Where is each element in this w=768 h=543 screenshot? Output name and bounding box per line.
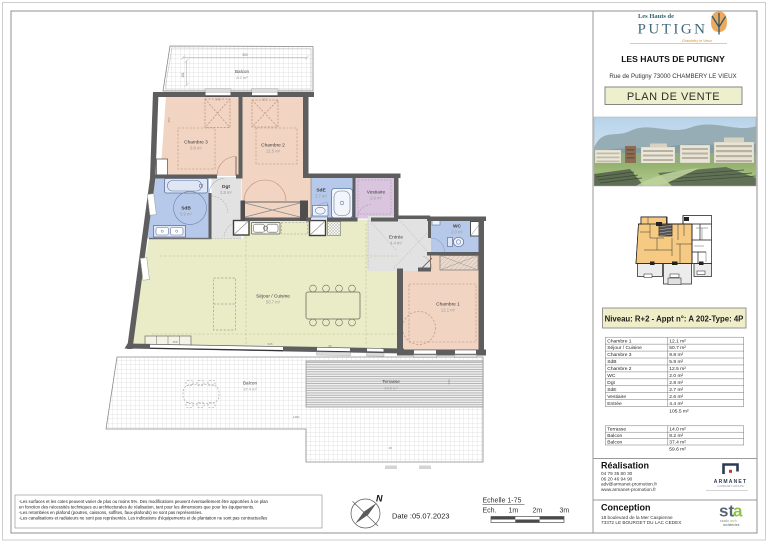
svg-text:946: 946: [267, 342, 272, 346]
svg-text:Vestiaire: Vestiaire: [607, 394, 626, 400]
svg-text:en fonction des nécessités tec: en fonction des nécessités techniques ou…: [19, 505, 254, 510]
svg-text:Chambre 2: Chambre 2: [607, 366, 631, 372]
svg-text:architectes: architectes: [723, 523, 740, 527]
svg-text:SdE: SdE: [607, 387, 617, 393]
svg-text:www.armanet-promotion.fr: www.armanet-promotion.fr: [601, 487, 656, 492]
svg-text:2.8 m²: 2.8 m²: [220, 190, 232, 195]
svg-text:PUTIGN: PUTIGN: [638, 22, 708, 38]
svg-text:2.8 m²: 2.8 m²: [669, 380, 683, 386]
svg-text:358: 358: [172, 340, 177, 344]
svg-text:240: 240: [215, 98, 220, 102]
svg-text:Terrasse: Terrasse: [382, 379, 400, 384]
svg-text:-Les surfaces et les cotes peu: -Les surfaces et les cotes peuvent varie…: [19, 499, 268, 504]
svg-text:Balcon: Balcon: [607, 440, 622, 446]
svg-text:73372 LE BOURGET DU LAC CEDEX: 73372 LE BOURGET DU LAC CEDEX: [601, 520, 682, 525]
svg-text:2.0 m²: 2.0 m²: [451, 230, 463, 235]
svg-text:9.8 m²: 9.8 m²: [669, 352, 683, 358]
svg-text:2.7 m²: 2.7 m²: [315, 194, 327, 199]
svg-text:5.9 m²: 5.9 m²: [669, 359, 683, 365]
svg-text:2.6 m²: 2.6 m²: [370, 196, 382, 201]
svg-text:8.2 m²: 8.2 m²: [669, 433, 683, 439]
svg-text:12.1 m²: 12.1 m²: [441, 308, 456, 313]
svg-text:Rue de Putigny 73000 CHAMBERY: Rue de Putigny 73000 CHAMBERY LE VIEUX: [609, 73, 736, 80]
svg-text:Balcon: Balcon: [607, 433, 622, 439]
svg-text:90: 90: [328, 344, 332, 348]
svg-text:14.0 m²: 14.0 m²: [384, 386, 398, 391]
svg-text:adv@armanet-promotion.fr: adv@armanet-promotion.fr: [601, 482, 658, 487]
svg-text:Date :05.07.2023: Date :05.07.2023: [392, 512, 450, 521]
svg-text:37.4 m²: 37.4 m²: [243, 387, 257, 392]
svg-text:-Les canalisations et radiateu: -Les canalisations et radiateurs ne sont…: [19, 516, 267, 521]
svg-text:2.7 m²: 2.7 m²: [669, 387, 683, 393]
svg-text:1460: 1460: [293, 415, 300, 419]
svg-text:1m: 1m: [509, 508, 519, 515]
svg-text:4.4 m²: 4.4 m²: [669, 401, 683, 407]
svg-text:5.9 m²: 5.9 m²: [180, 212, 192, 217]
svg-text:4.4 m²: 4.4 m²: [390, 241, 402, 246]
svg-text:300: 300: [242, 53, 248, 57]
svg-text:105.5 m²: 105.5 m²: [669, 409, 689, 415]
svg-text:A ARMANET GROUPE: A ARMANET GROUPE: [717, 484, 744, 488]
svg-text:Balcon: Balcon: [235, 69, 249, 74]
svg-text:Balcon: Balcon: [243, 381, 257, 386]
svg-text:18 boulevard de la Mer Caspien: 18 boulevard de la Mer Caspienne: [601, 515, 673, 520]
svg-text:LES HAUTS DE PUTIGNY: LES HAUTS DE PUTIGNY: [621, 54, 725, 64]
svg-text:Terrasse: Terrasse: [607, 427, 626, 433]
svg-text:Entrée: Entrée: [607, 401, 622, 407]
svg-text:18: 18: [388, 446, 392, 450]
svg-text:50.7 m²: 50.7 m²: [669, 345, 686, 351]
svg-text:2.6 m²: 2.6 m²: [669, 394, 683, 400]
svg-text:8.2 m²: 8.2 m²: [236, 75, 248, 80]
svg-text:2m: 2m: [533, 508, 543, 515]
svg-text:3m: 3m: [560, 508, 570, 515]
svg-text:Séjour / Cuisine: Séjour / Cuisine: [607, 345, 642, 351]
svg-text:-Les retombées en plafond (pou: -Les retombées en plafond (poutres, cais…: [19, 510, 203, 515]
svg-text:207: 207: [262, 98, 267, 102]
svg-text:04 79 35 80 30: 04 79 35 80 30: [601, 471, 633, 476]
svg-text:a: a: [733, 502, 743, 521]
svg-text:14.0 m²: 14.0 m²: [669, 427, 686, 433]
svg-text:06 20 46 94 90: 06 20 46 94 90: [601, 476, 633, 481]
svg-text:Les Hauts de: Les Hauts de: [638, 13, 674, 20]
svg-text:Chambéry le Vieux: Chambéry le Vieux: [682, 39, 712, 43]
svg-text:Niveau: R+2 - Appt n°: A 202-: Niveau: R+2 - Appt n°: A 202-Type: 4P: [605, 315, 744, 324]
svg-text:Echelle 1-75: Echelle 1-75: [483, 498, 522, 505]
svg-text:9.8 m²: 9.8 m²: [190, 146, 202, 151]
svg-text:SdB: SdB: [607, 359, 616, 365]
svg-text:363: 363: [447, 379, 451, 384]
svg-text:Chambre 3: Chambre 3: [607, 352, 631, 358]
svg-text:12.5 m²: 12.5 m²: [266, 149, 281, 154]
svg-text:50.7 m²: 50.7 m²: [266, 300, 281, 305]
svg-text:253: 253: [167, 117, 171, 122]
svg-text:Chambre 1: Chambre 1: [607, 338, 631, 344]
svg-text:12.5 m²: 12.5 m²: [669, 366, 686, 372]
svg-text:Ech.: Ech.: [483, 508, 497, 515]
svg-text:12.1 m²: 12.1 m²: [669, 338, 686, 344]
svg-text:PLAN DE VENTE: PLAN DE VENTE: [627, 91, 720, 103]
svg-text:Conception: Conception: [601, 503, 651, 513]
svg-text:Dgt: Dgt: [607, 380, 615, 386]
svg-text:161: 161: [181, 72, 185, 78]
svg-text:WC: WC: [607, 373, 616, 379]
svg-text:Réalisation: Réalisation: [601, 461, 649, 471]
svg-text:N: N: [376, 494, 383, 504]
svg-text:59.6 m²: 59.6 m²: [669, 447, 686, 453]
svg-text:2.0 m²: 2.0 m²: [669, 373, 683, 379]
svg-text:37.4 m²: 37.4 m²: [669, 440, 686, 446]
